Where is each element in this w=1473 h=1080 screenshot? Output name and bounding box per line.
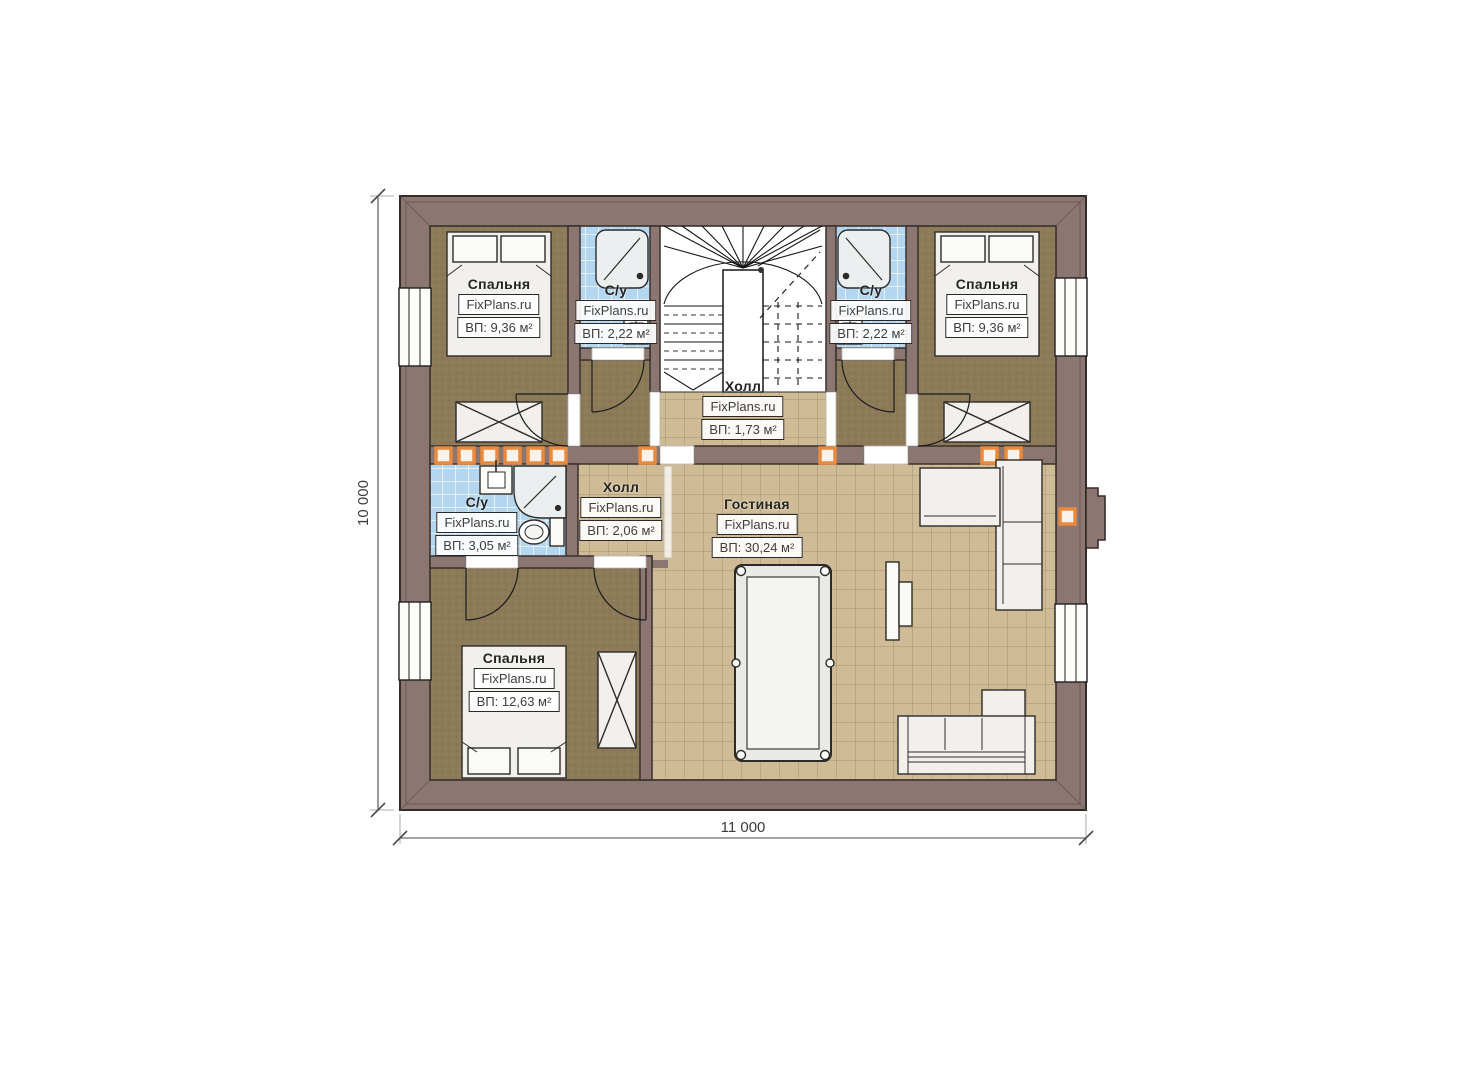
- room-label-bath-tl: С/у FixPlans.ru ВП: 2,22 м²: [574, 282, 657, 344]
- dimension-line-left: [370, 189, 394, 817]
- area-box: ВП: 1,73 м²: [701, 419, 784, 440]
- watermark-box: FixPlans.ru: [716, 514, 797, 535]
- watermark-box: FixPlans.ru: [580, 497, 661, 518]
- area-box: ВП: 9,36 м²: [457, 317, 540, 338]
- wardrobe-bedroom-tr: [944, 402, 1030, 442]
- watermark-box: FixPlans.ru: [436, 512, 517, 533]
- watermark-box: FixPlans.ru: [946, 294, 1027, 315]
- area-box: ВП: 2,22 м²: [829, 323, 912, 344]
- watermark-box: FixPlans.ru: [473, 668, 554, 689]
- toilet-bath-ml: [519, 518, 564, 546]
- area-box: ВП: 2,06 м²: [579, 520, 662, 541]
- room-name: Холл: [603, 479, 639, 495]
- dimension-width-label: 11 000: [721, 819, 766, 836]
- room-label-bath-tr: С/у FixPlans.ru ВП: 2,22 м²: [829, 282, 912, 344]
- billiard-table: [732, 565, 834, 761]
- watermark-box: FixPlans.ru: [458, 294, 539, 315]
- area-box: ВП: 3,05 м²: [435, 535, 518, 556]
- room-label-living: Гостиная FixPlans.ru ВП: 30,24 м²: [712, 496, 803, 558]
- shower-cabin-bath-tl: [596, 230, 648, 288]
- room-name: С/у: [605, 282, 628, 298]
- area-box: ВП: 12,63 м²: [469, 691, 560, 712]
- watermark-box: FixPlans.ru: [830, 300, 911, 321]
- room-label-bedroom-bl: Спальня FixPlans.ru ВП: 12,63 м²: [469, 650, 560, 712]
- room-name: Спальня: [468, 276, 531, 292]
- wardrobe-bedroom-tl: [456, 402, 542, 442]
- room-name: С/у: [860, 282, 883, 298]
- shower-cabin-bath-tr: [838, 230, 890, 288]
- area-box: ВП: 9,36 м²: [945, 317, 1028, 338]
- corner-shower-bath-ml: [514, 466, 566, 518]
- area-box: ВП: 30,24 м²: [712, 537, 803, 558]
- room-name: Холл: [725, 378, 761, 394]
- room-label-stair-hall: Холл FixPlans.ru ВП: 1,73 м²: [701, 378, 784, 440]
- room-label-bedroom-tl: Спальня FixPlans.ru ВП: 9,36 м²: [457, 276, 540, 338]
- chimney: [1086, 488, 1105, 548]
- floor-plan-page: 10 000 11 000: [0, 0, 1473, 1080]
- window-left-bottom: [399, 602, 431, 680]
- vestibule-tr-floor: [836, 360, 906, 446]
- room-label-bedroom-tr: Спальня FixPlans.ru ВП: 9,36 м²: [945, 276, 1028, 338]
- dimension-height-label: 10 000: [355, 480, 372, 526]
- window-right-top: [1055, 278, 1087, 356]
- window-left-top: [399, 288, 431, 366]
- room-name: Спальня: [956, 276, 1019, 292]
- watermark-box: FixPlans.ru: [702, 396, 783, 417]
- area-box: ВП: 2,22 м²: [574, 323, 657, 344]
- window-right-bottom: [1055, 604, 1087, 682]
- room-name: С/у: [466, 494, 489, 510]
- stair-landing: [723, 270, 763, 392]
- room-name: Гостиная: [724, 496, 790, 512]
- room-label-hall: Холл FixPlans.ru ВП: 2,06 м²: [579, 479, 662, 541]
- room-name: Спальня: [483, 650, 546, 666]
- wardrobe-bedroom-bl: [598, 652, 636, 748]
- room-label-bath-ml: С/у FixPlans.ru ВП: 3,05 м²: [435, 494, 518, 556]
- watermark-box: FixPlans.ru: [575, 300, 656, 321]
- vestibule-tl-floor: [580, 360, 650, 446]
